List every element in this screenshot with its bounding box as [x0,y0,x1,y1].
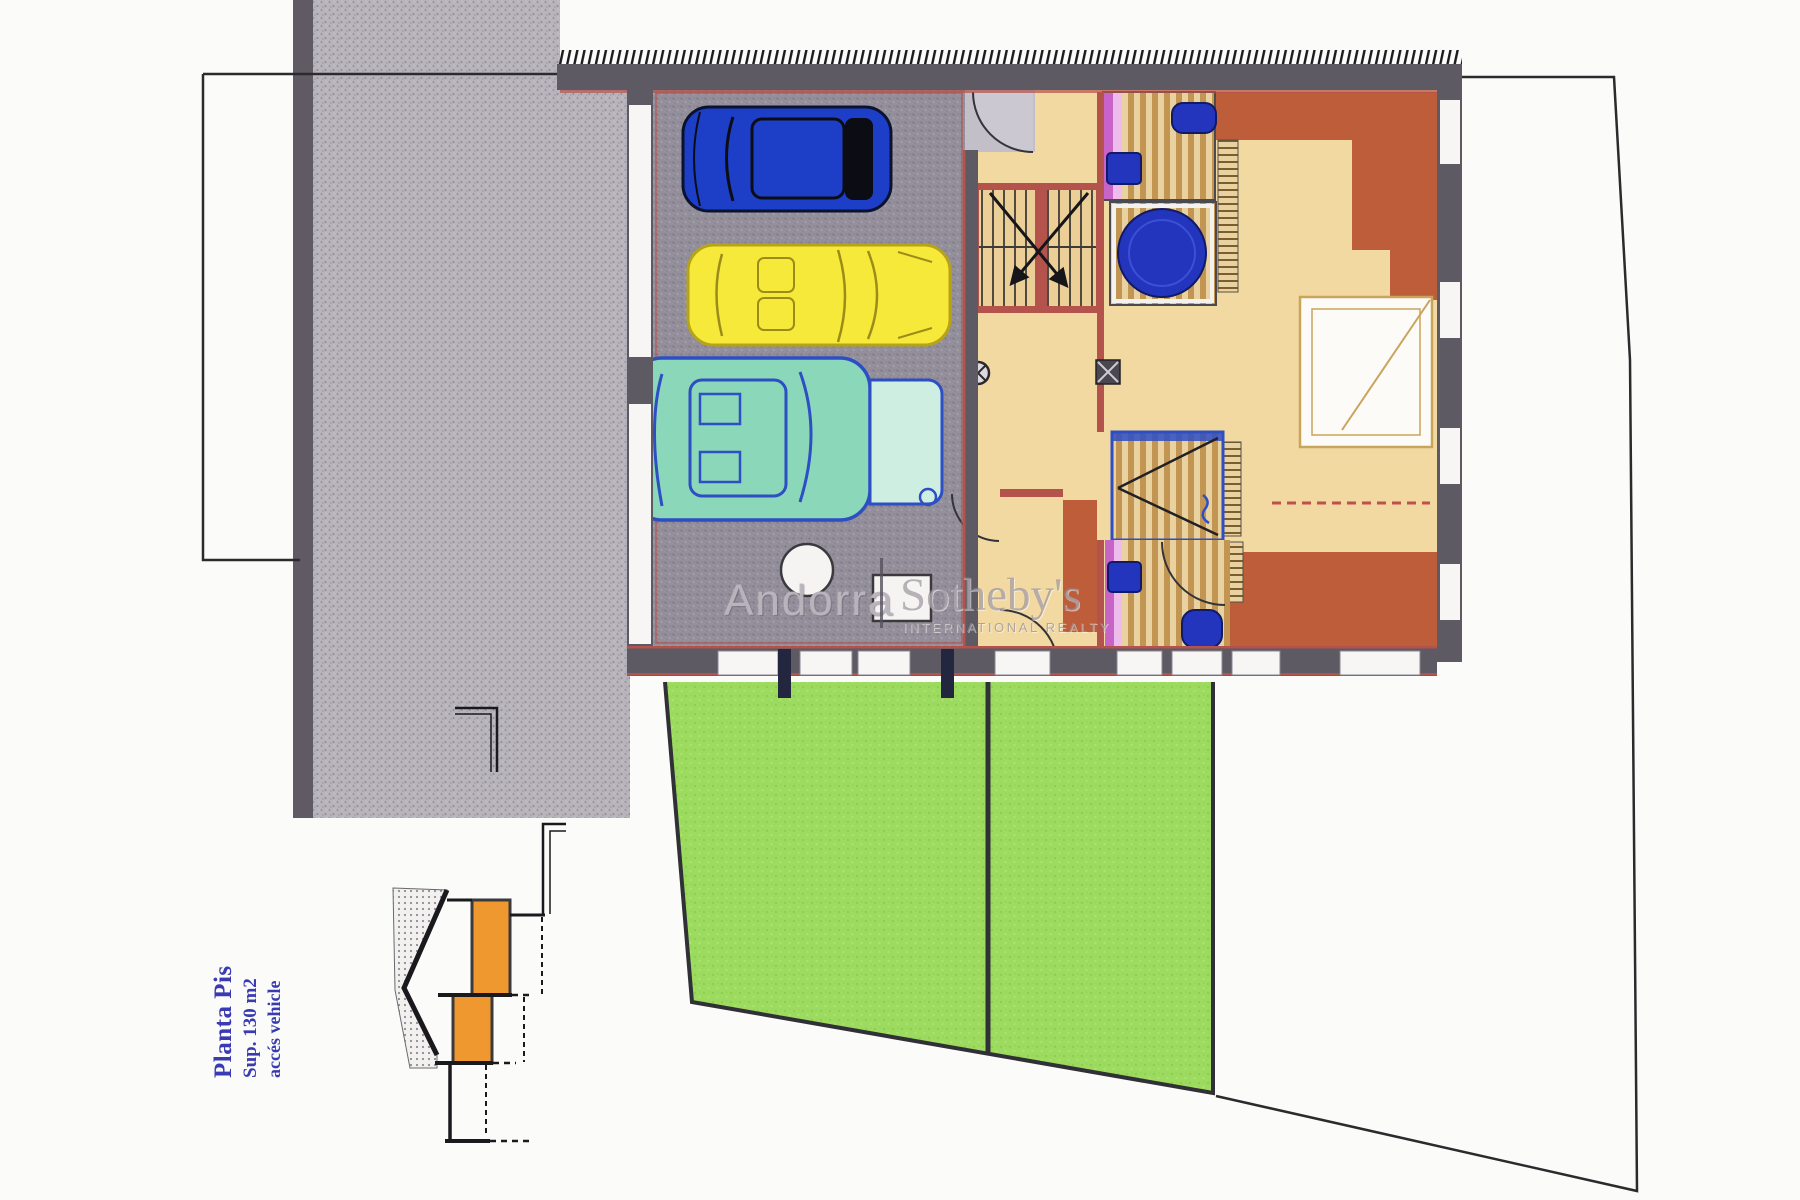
section-stair-lower [453,995,492,1063]
driveway-area [293,0,630,818]
section-stair-upper [472,900,510,995]
vestibule [965,90,1035,152]
plan-title: Planta Pis [208,902,239,1078]
plan-caption: Planta Pis Sup. 130 m2 accés vehicle [208,902,308,1078]
round-table [781,544,833,596]
plan-area: Sup. 130 m2 [239,902,263,1078]
bidet [1107,153,1141,184]
bathtub-room [1110,202,1216,305]
bed [1300,297,1432,447]
car-blue [683,107,891,211]
house-plan [557,50,1462,698]
bathroom-top [1103,92,1216,200]
lawn [665,682,1213,1093]
car-yellow [688,245,950,345]
plan-access: accés vehicle [263,902,286,1078]
car-open-hatch [870,380,942,504]
bathtub [1118,209,1206,297]
staircase [975,183,1100,313]
floor-plan-page: Andorra Sotheby's INTERNATIONAL REALTY P… [0,0,1800,1200]
toilet [1172,103,1216,133]
toilet [1182,610,1222,648]
garage-door-opening [629,105,651,357]
watermark-divider [880,558,883,628]
bathroom-bottom [1105,540,1230,648]
sink [1108,562,1141,592]
garage-door-opening [629,404,651,644]
shower-room [1112,432,1223,540]
car-teal [632,358,942,520]
